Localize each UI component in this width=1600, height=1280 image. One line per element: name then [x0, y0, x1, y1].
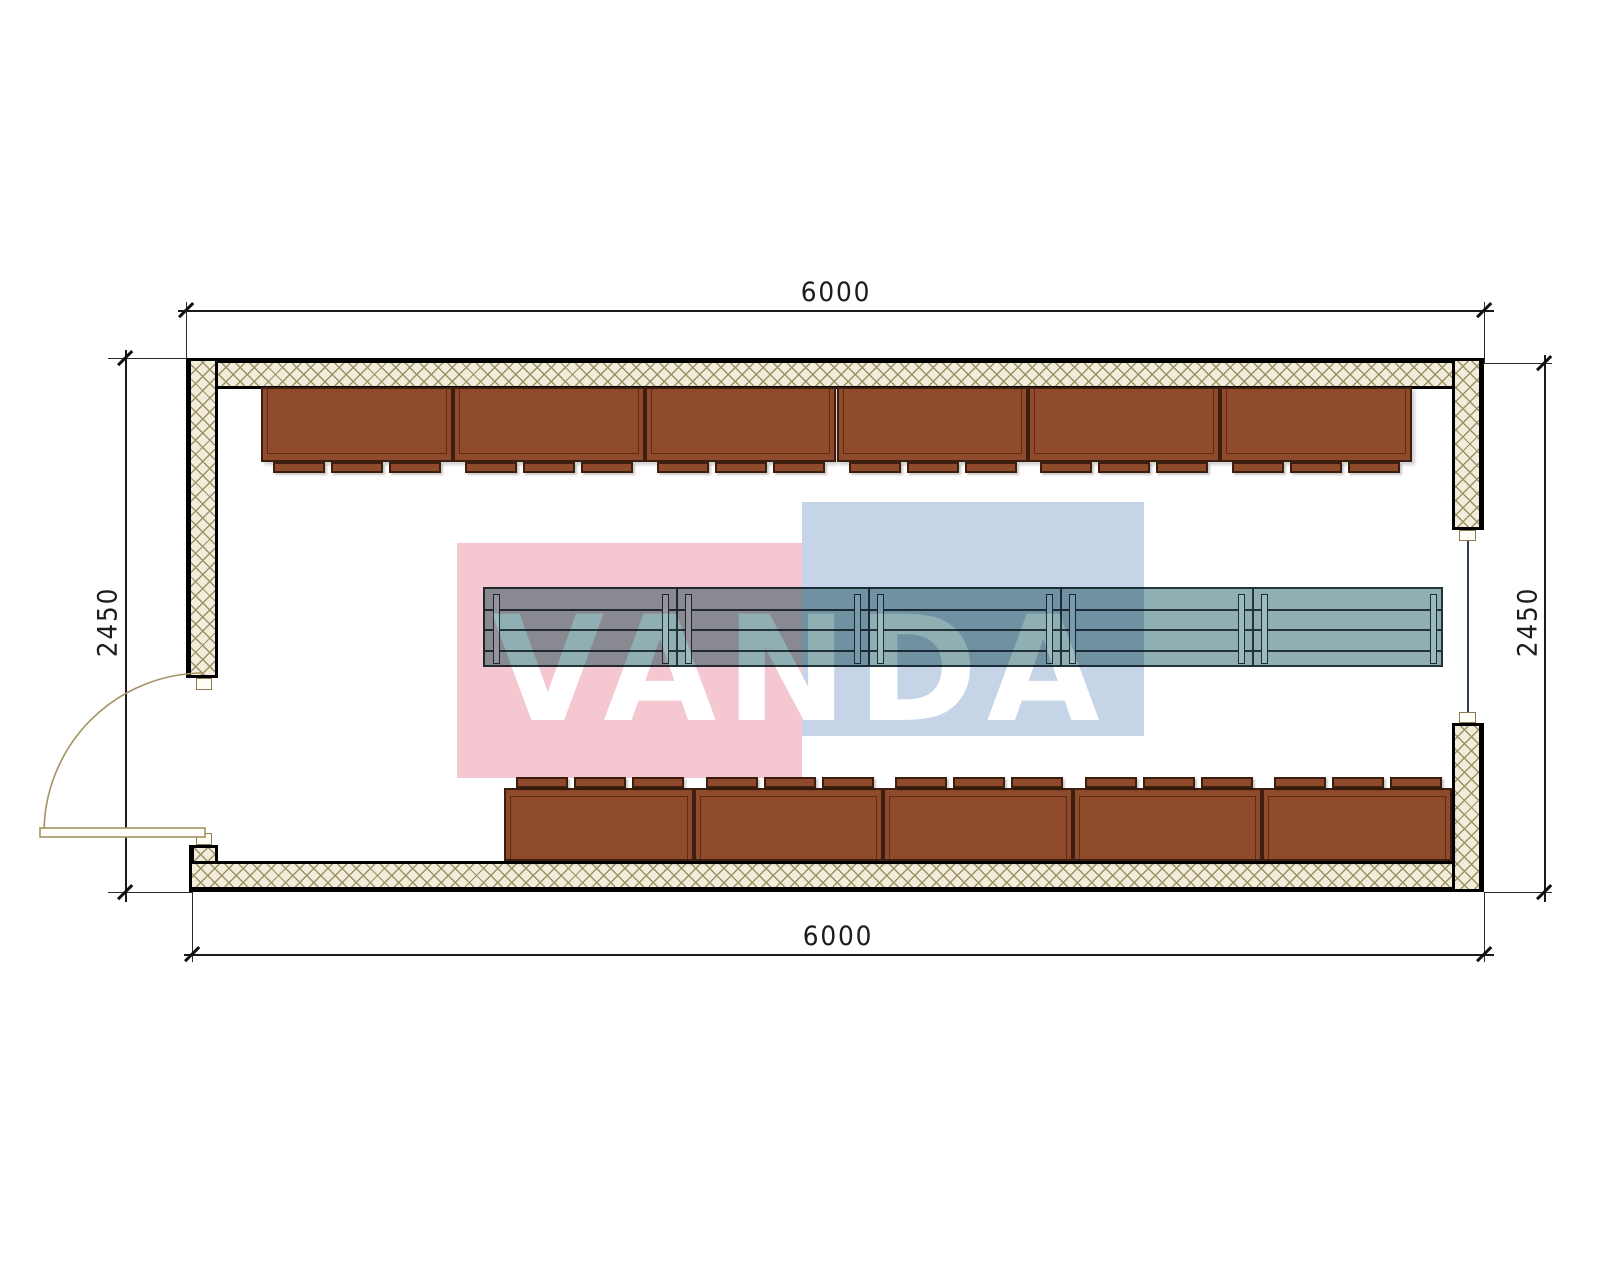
- cabinet-foot-tab: [516, 777, 568, 788]
- cabinet-foot-tab: [1011, 777, 1063, 788]
- bottom-dimension-line: [184, 954, 1494, 956]
- cabinet-foot-tab: [706, 777, 758, 788]
- table-leg: [1046, 594, 1053, 664]
- right-dimension-line: [1544, 355, 1546, 902]
- cabinet-foot-tab: [523, 462, 575, 473]
- cabinet-block: [837, 387, 1029, 462]
- table-leg: [1261, 594, 1268, 664]
- cabinet-panel-line: [1226, 389, 1406, 454]
- window-jamb-bottom: [1459, 712, 1476, 723]
- table-leg: [685, 594, 692, 664]
- top-dimension-line: [178, 310, 1494, 312]
- cabinet-foot-tab: [965, 462, 1017, 473]
- door-swing: [0, 640, 260, 900]
- table-leg: [854, 594, 861, 664]
- cabinet-foot-tab: [953, 777, 1005, 788]
- window-glass-line: [1467, 541, 1469, 712]
- cabinet-foot-tab: [1156, 462, 1208, 473]
- top-dimension-label: 6000: [801, 277, 872, 308]
- cabinet-panel-line: [889, 796, 1067, 859]
- cabinet-block: [883, 788, 1073, 861]
- table-leg: [1238, 594, 1245, 664]
- cabinet-panel-line: [843, 389, 1023, 454]
- cabinet-panel-line: [1268, 796, 1446, 859]
- cabinet-foot-tab: [1143, 777, 1195, 788]
- cabinet-foot-tab: [331, 462, 383, 473]
- floor-plan-canvas: 6000 6000 2450 2450 VAN: [0, 0, 1600, 1280]
- cabinet-panel-line: [700, 796, 878, 859]
- cabinet-foot-tab: [822, 777, 874, 788]
- cabinet-block: [694, 788, 884, 861]
- center-table: [483, 587, 1443, 667]
- cabinet-foot-tab: [849, 462, 901, 473]
- cabinet-block: [1073, 788, 1263, 861]
- wall-right-lower: [1452, 723, 1484, 892]
- cabinet-foot-tab: [1390, 777, 1442, 788]
- cabinet-block: [1220, 387, 1412, 462]
- right-dimension-label: 2450: [1513, 587, 1544, 658]
- extension-line: [108, 358, 186, 359]
- cabinet-foot-tab: [764, 777, 816, 788]
- table-segment-divider: [868, 589, 870, 665]
- cabinet-foot-tab: [574, 777, 626, 788]
- table-leg: [662, 594, 669, 664]
- cabinet-panel-line: [510, 796, 688, 859]
- table-leg: [877, 594, 884, 664]
- table-leg: [1430, 594, 1437, 664]
- cabinet-panel-line: [1079, 796, 1257, 859]
- cabinet-foot-tab: [907, 462, 959, 473]
- cabinet-foot-tab: [1201, 777, 1253, 788]
- cabinet-panel-line: [651, 389, 831, 454]
- cabinet-foot-tab: [581, 462, 633, 473]
- table-leg: [1069, 594, 1076, 664]
- cabinet-block: [1262, 788, 1452, 861]
- cabinet-foot-tab: [1098, 462, 1150, 473]
- cabinet-foot-tab: [715, 462, 767, 473]
- wall-bottom: [189, 861, 1484, 892]
- table-plank-line: [485, 609, 1441, 611]
- cabinet-foot-tab: [1332, 777, 1384, 788]
- cabinet-panel-line: [267, 389, 447, 454]
- cabinet-foot-tab: [465, 462, 517, 473]
- wall-right-upper: [1452, 358, 1484, 530]
- table-segment-divider: [1252, 589, 1254, 665]
- cabinet-foot-tab: [273, 462, 325, 473]
- wall-left-upper: [186, 358, 218, 678]
- cabinet-foot-tab: [1290, 462, 1342, 473]
- cabinet-foot-tab: [895, 777, 947, 788]
- cabinet-foot-tab: [1040, 462, 1092, 473]
- cabinet-foot-tab: [657, 462, 709, 473]
- cabinet-panel-line: [1034, 389, 1214, 454]
- cabinet-block: [1028, 387, 1220, 462]
- window-jamb-top: [1459, 530, 1476, 541]
- cabinet-block: [504, 788, 694, 861]
- cabinet-panel-line: [459, 389, 639, 454]
- cabinet-foot-tab: [1085, 777, 1137, 788]
- door-leaf: [40, 828, 205, 837]
- cabinet-foot-tab: [1274, 777, 1326, 788]
- table-leg: [493, 594, 500, 664]
- cabinet-block: [645, 387, 837, 462]
- table-plank-line: [485, 629, 1441, 631]
- cabinet-foot-tab: [1232, 462, 1284, 473]
- cabinet-foot-tab: [632, 777, 684, 788]
- cabinet-block: [453, 387, 645, 462]
- cabinet-foot-tab: [389, 462, 441, 473]
- door-arc: [44, 673, 204, 833]
- wall-top: [186, 358, 1484, 389]
- cabinet-foot-tab: [1348, 462, 1400, 473]
- cabinet-block: [261, 387, 453, 462]
- table-plank-line: [485, 650, 1441, 652]
- bottom-dimension-label: 6000: [803, 921, 874, 952]
- cabinet-foot-tab: [773, 462, 825, 473]
- table-segment-divider: [676, 589, 678, 665]
- table-segment-divider: [1060, 589, 1062, 665]
